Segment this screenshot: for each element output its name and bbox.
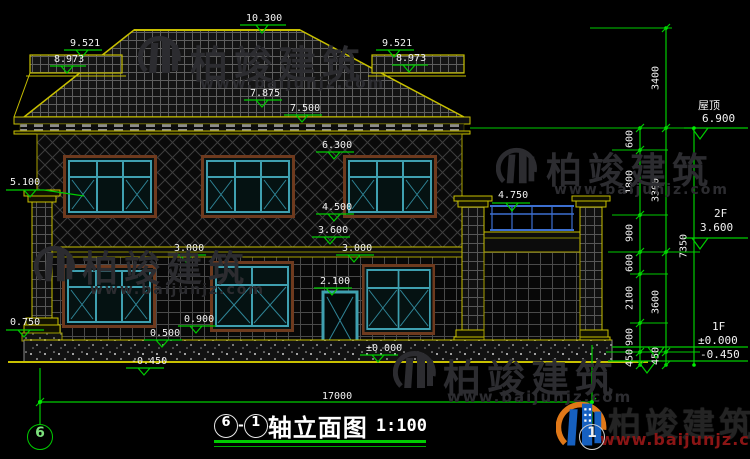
label-door-head: 2.100: [320, 276, 350, 287]
label-porch-capital: 5.100: [10, 177, 40, 188]
dim-outer-3600: 3600: [651, 290, 662, 314]
dim-inner-900a: 900: [625, 224, 636, 242]
brand-logo-url: www.baijunjz.com: [600, 430, 750, 449]
label-ridge: 10.300: [246, 13, 282, 24]
dim-inner-600b: 600: [625, 254, 636, 272]
title-dash: -: [238, 418, 244, 434]
dim-inner-2100: 2100: [625, 286, 636, 310]
label-wing-eave-right: 8.973: [396, 53, 426, 64]
dim-inner-450: 450: [625, 349, 636, 367]
window-2f-left: [65, 157, 156, 217]
axis-bubble-6: 6: [27, 424, 53, 450]
dim-outer-450: 450: [651, 347, 662, 365]
watermark-logo-icon: [34, 240, 78, 290]
label-wing-eave-left: 8.973: [54, 54, 84, 65]
drawing-linework: [0, 0, 750, 459]
annex-railing: [490, 206, 574, 230]
window-1f-right: [363, 266, 433, 334]
title-scale: 1:100: [376, 416, 427, 436]
label-1f: 1F: [712, 320, 725, 333]
watermark-url: www.baijunjz.com: [554, 182, 729, 198]
label-1f-window-sill: 0.900: [184, 314, 214, 325]
annex-wall: [484, 252, 580, 340]
label-2f-value: 3.600: [700, 221, 733, 234]
watermark-logo-icon: [393, 346, 439, 396]
annex-fascia: [484, 232, 580, 252]
label-2f: 2F: [714, 207, 727, 220]
title-underline-thick: [214, 440, 426, 443]
watermark-logo-icon: [496, 142, 540, 192]
elevation-drawing-canvas: 10.300 9.521 8.973 9.521 8.973 7.875 7.5…: [0, 0, 750, 459]
label-minus-450: -0.450: [131, 356, 167, 367]
label-pedestal: 0.750: [10, 317, 40, 328]
eave-cornice: [14, 117, 470, 134]
window-2f-right: [345, 157, 436, 217]
title-axis-to: 1: [244, 414, 268, 438]
label-wing-top-left: 9.521: [70, 38, 100, 49]
window-2f-center: [203, 157, 294, 217]
label-2f-floor: 3.600: [318, 225, 348, 236]
drawing-title: 6-1轴立面图1:100: [214, 408, 444, 443]
title-underline-thin: [214, 446, 426, 447]
watermark-url: www.baijunjz.com: [90, 282, 265, 298]
label-sill-low: 0.500: [150, 328, 180, 339]
axis-bubble-1: 1: [579, 424, 605, 450]
label-2f-window-sill: 4.500: [322, 202, 352, 213]
label-2f-window-head: 6.300: [322, 140, 352, 151]
dim-total-height: 7350: [679, 234, 690, 258]
title-axis-from: 6: [214, 414, 238, 438]
dim-outer-3400: 3400: [651, 66, 662, 90]
label-roof-value: 6.900: [702, 112, 735, 125]
label-1f-window-head-right: 3.000: [342, 243, 372, 254]
dim-inner-900b: 900: [625, 328, 636, 346]
title-name: 轴立面图: [268, 414, 368, 442]
label-1f-value: ±0.000: [698, 334, 738, 347]
label-wing-top-right: 9.521: [382, 38, 412, 49]
watermark-url: www.baijunjz.com: [200, 74, 385, 92]
label-below-grade: -0.450: [700, 348, 740, 361]
label-eave-lower: 7.500: [290, 103, 320, 114]
dim-total-width: 17000: [322, 391, 352, 402]
label-roof-level: 屋顶: [698, 97, 720, 113]
watermark-logo-icon: [138, 30, 184, 82]
